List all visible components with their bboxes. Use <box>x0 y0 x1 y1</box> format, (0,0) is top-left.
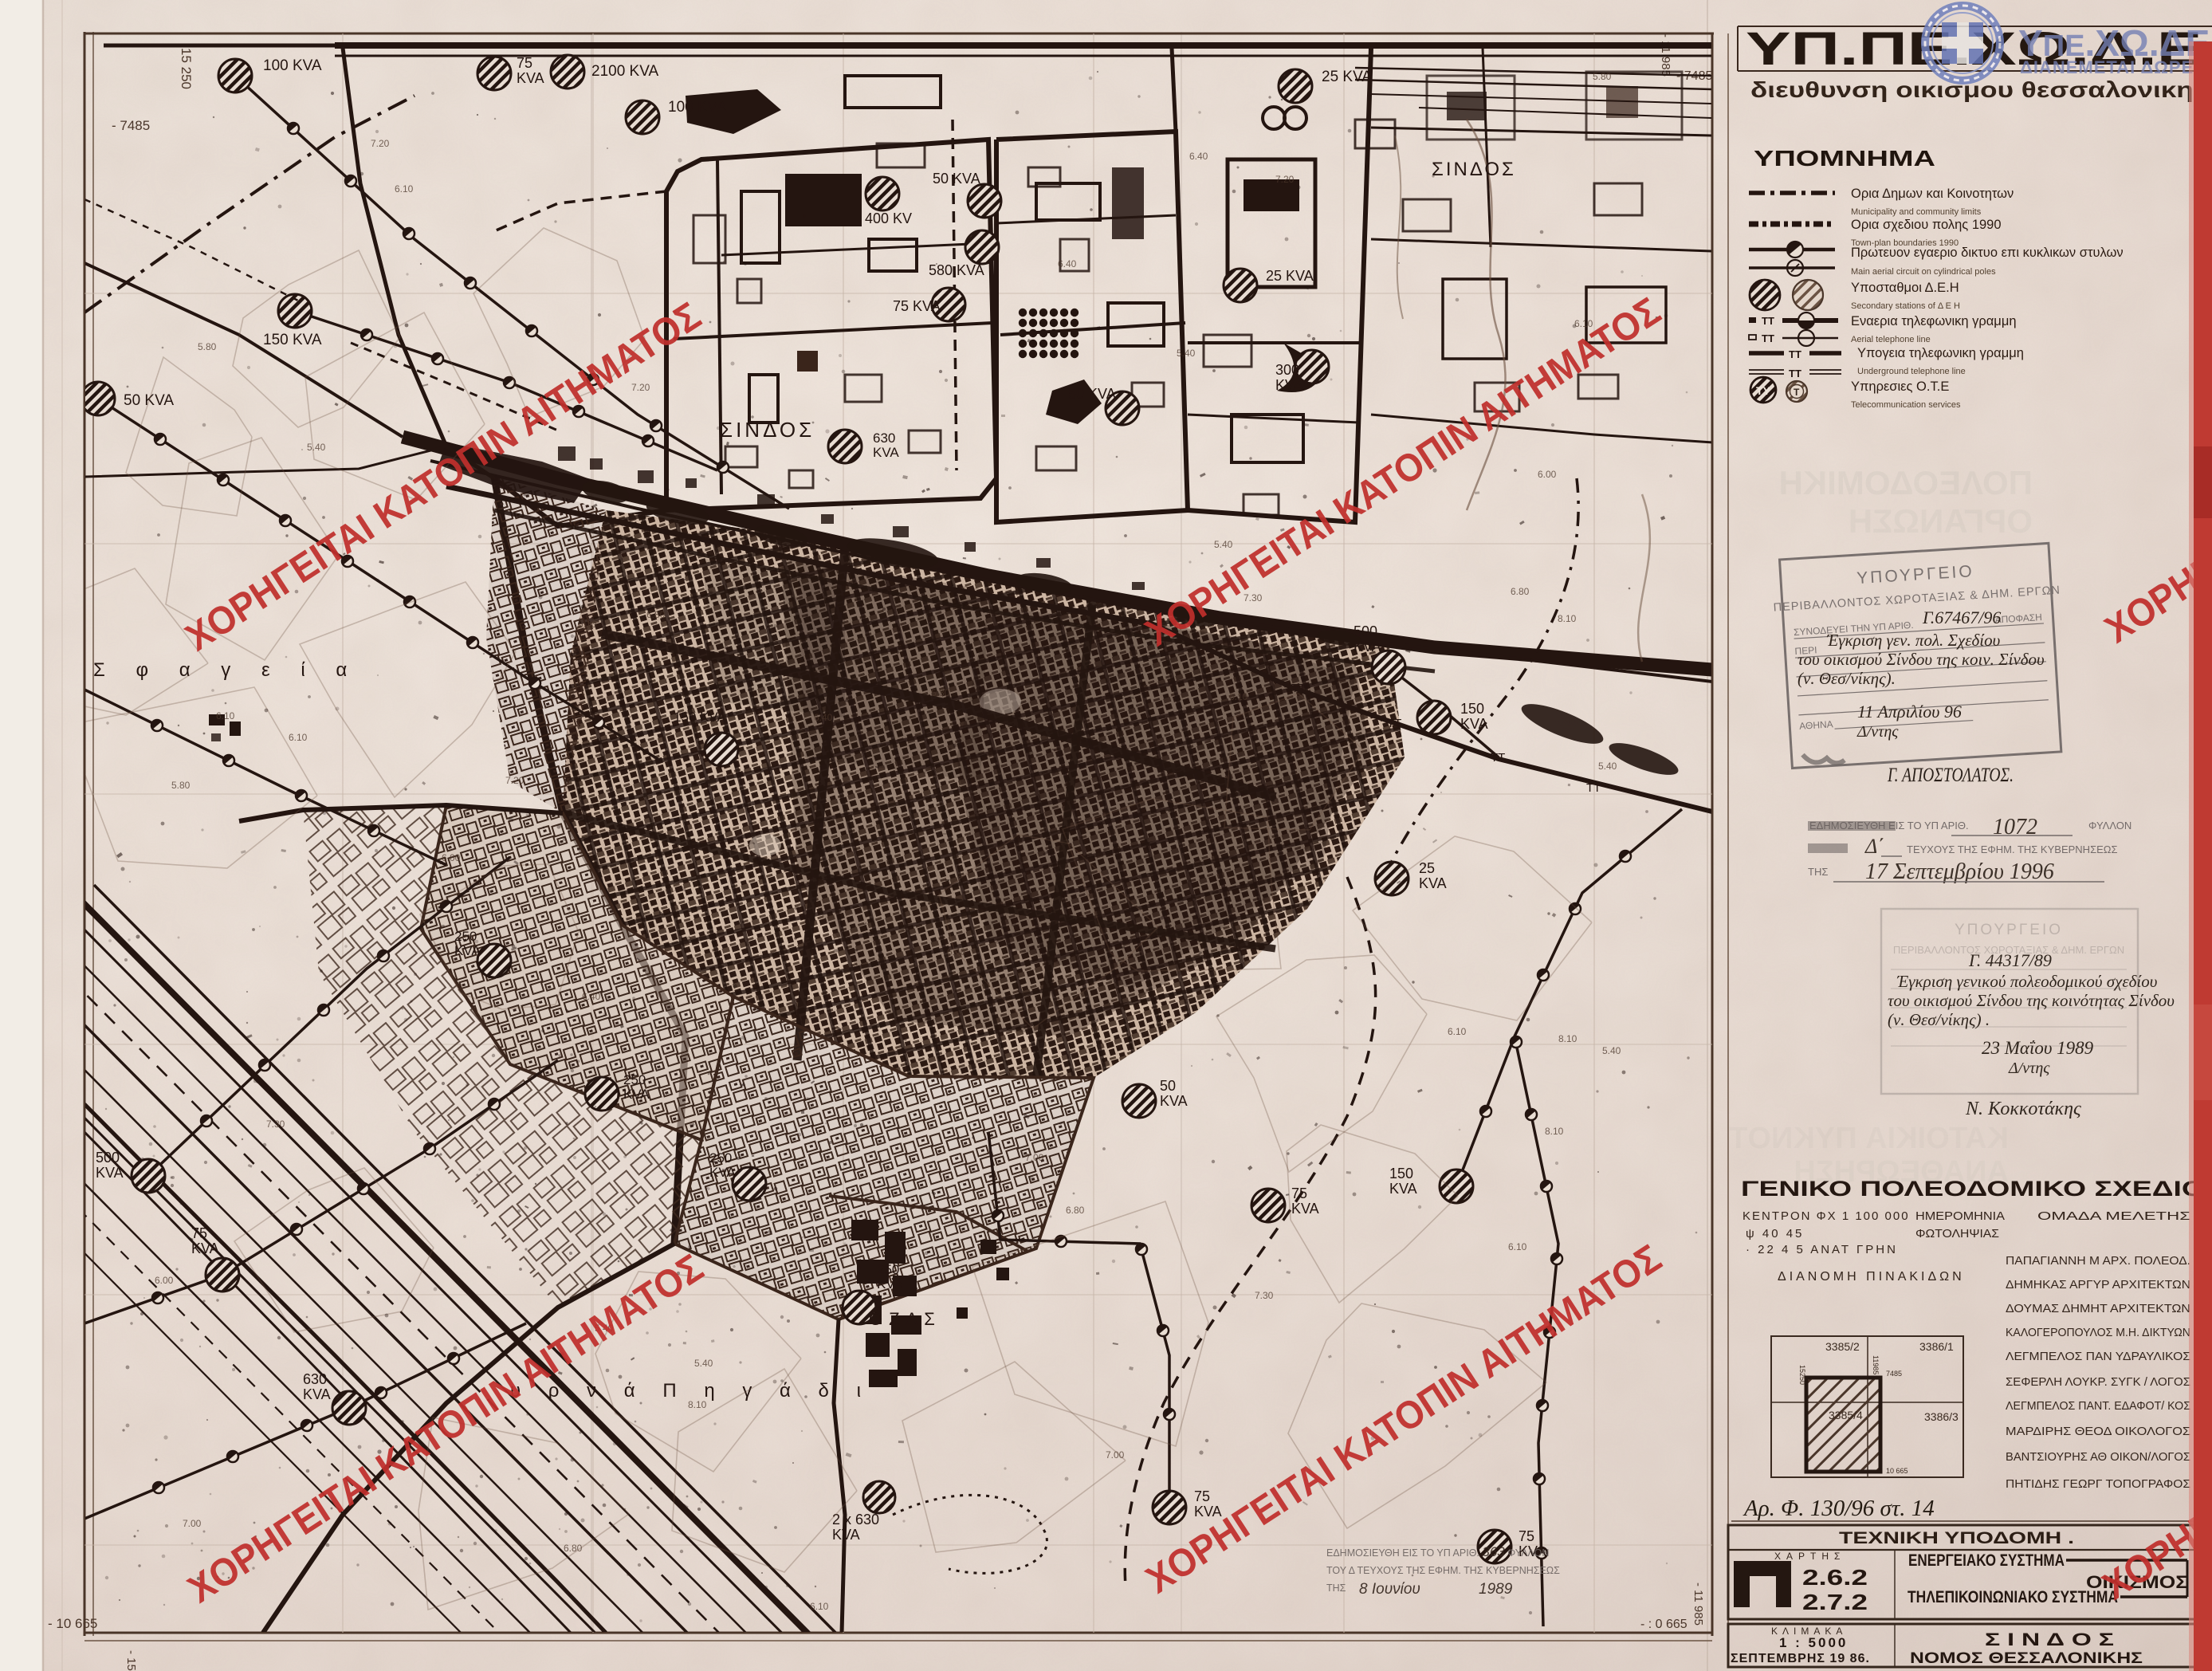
svg-text:ΜΑΡΔΙΡΗΣ ΘΕΟΔ ΟΙΚΟΛΟΓΟΣ: ΜΑΡΔΙΡΗΣ ΘΕΟΔ ΟΙΚΟΛΟΓΟΣ <box>2006 1425 2190 1438</box>
svg-text:ΔΟΥΜΑΣ ΔΗΜΗΤ ΑΡΧΙΤΕΚΤΩΝ: ΔΟΥΜΑΣ ΔΗΜΗΤ ΑΡΧΙΤΕΚΤΩΝ <box>2006 1303 2190 1315</box>
svg-text:- 7485: - 7485 <box>112 118 150 133</box>
svg-text:500: 500 <box>1354 623 1377 639</box>
svg-text:KVA: KVA <box>1160 1093 1188 1109</box>
svg-text:ΚΑΤΟΙΚΙΑ ΠΥΚΝΟΤ: ΚΑΤΟΙΚΙΑ ΠΥΚΝΟΤ <box>1729 1122 2009 1155</box>
svg-text:25 KVA: 25 KVA <box>1322 69 1372 85</box>
svg-text:7.20: 7.20 <box>631 382 650 393</box>
svg-text:ΠΟΛΕΟΔΟΜΙΚΗ: ΠΟΛΕΟΔΟΜΙΚΗ <box>1779 464 2033 501</box>
svg-text:ΝΟΜΟΣ ΘΕΣΣΑΛΟΝΙΚΗΣ: ΝΟΜΟΣ ΘΕΣΣΑΛΟΝΙΚΗΣ <box>1910 1650 2143 1667</box>
svg-text:ΣΙΝΔΟΣ: ΣΙΝΔΟΣ <box>1432 159 1516 180</box>
svg-text:TT: TT <box>1387 717 1401 730</box>
svg-text:2.6.2: 2.6.2 <box>1802 1565 1868 1590</box>
svg-text:Δ/ντης: Δ/ντης <box>1856 723 1899 741</box>
svg-text:KVA: KVA <box>96 1165 124 1181</box>
svg-text:TY: TY <box>1756 384 1771 397</box>
svg-text:ΤΟΥ Δ ΤΕΥΧΟΥΣ ΤΗΣ ΕΦΗΜ. ΤΗΣ ΚΥ: ΤΟΥ Δ ΤΕΥΧΟΥΣ ΤΗΣ ΕΦΗΜ. ΤΗΣ ΚΥΒΕΡΝΗΣΕΩΣ <box>1326 1565 1560 1576</box>
svg-text:Ορια σχεδιου πολης 1990: Ορια σχεδιου πολης 1990 <box>1851 218 2002 232</box>
svg-text:Έγκριση γενικού πολεοδομικού σ: Έγκριση γενικού πολεοδομικού σχεδίου <box>1896 972 2157 991</box>
svg-text:6.40: 6.40 <box>1058 258 1077 269</box>
svg-text:(ν. Θεσ/νίκης) .: (ν. Θεσ/νίκης) . <box>1888 1010 1990 1029</box>
svg-text:7.30: 7.30 <box>1255 1290 1274 1301</box>
svg-text:6.10: 6.10 <box>578 619 597 630</box>
svg-text:500: 500 <box>96 1150 120 1166</box>
svg-text:250: 250 <box>709 1150 732 1166</box>
svg-text:ΕΝΕΡΓΕΙΑΚΟ ΣΥΣΤΗΜΑ: ΕΝΕΡΓΕΙΑΚΟ ΣΥΣΤΗΜΑ <box>1908 1551 2065 1570</box>
svg-text:6.00: 6.00 <box>155 1275 174 1286</box>
svg-text:5.80: 5.80 <box>198 341 217 352</box>
svg-text:KVA: KVA <box>1291 1201 1319 1217</box>
svg-text:250: 250 <box>623 1072 646 1087</box>
svg-text:6.80: 6.80 <box>564 1543 583 1554</box>
svg-text:KVA: KVA <box>1389 1181 1417 1197</box>
svg-text:TT: TT <box>1762 332 1774 344</box>
svg-text:100 KVA: 100 KVA <box>668 99 727 116</box>
svg-text:Υποσταθμοι Δ.Ε.Η: Υποσταθμοι Δ.Ε.Η <box>1851 281 1959 295</box>
svg-text:7.00: 7.00 <box>1025 1152 1044 1163</box>
svg-text:Γ. 44317/89: Γ. 44317/89 <box>1968 950 2052 970</box>
svg-text:400 KV: 400 KV <box>865 210 912 226</box>
svg-text:- 15 250: - 15 250 <box>124 1650 138 1671</box>
svg-text:Δ΄: Δ΄ <box>1864 835 1884 858</box>
svg-text:5.40: 5.40 <box>1177 348 1196 359</box>
svg-text:6.10: 6.10 <box>216 710 235 721</box>
svg-text:ΟΡΓΑΝΩΣΗ: ΟΡΓΑΝΩΣΗ <box>1849 502 2033 540</box>
svg-text:7.20: 7.20 <box>505 775 525 786</box>
svg-text:ΣΕΦΕΡΛΗ ΛΟΥΚΡ. ΣΥΓΚ / ΛΟΓΟ: ΣΕΦΕΡΛΗ ΛΟΥΚΡ. ΣΥΓΚ / ΛΟΓΟΣ <box>2006 1376 2190 1389</box>
svg-text:5.80: 5.80 <box>1593 71 1612 82</box>
svg-text:ΤΗΛΕΠΙΚΟΙΝΩΝΙΑΚΟ ΣΥΣΤΗΜΑ: ΤΗΛΕΠΙΚΟΙΝΩΝΙΑΚΟ ΣΥΣΤΗΜΑ <box>1908 1588 2118 1606</box>
svg-text:KVA: KVA <box>191 1240 219 1256</box>
svg-text:ΠΗΤΙΔΗΣ ΓΕΩΡΓ ΤΟΠΟΓΡΑΦΟΣ: ΠΗΤΙΔΗΣ ΓΕΩΡΓ ΤΟΠΟΓΡΑΦΟΣ <box>2006 1478 2190 1491</box>
svg-text:6.10: 6.10 <box>1229 691 1248 702</box>
svg-text:Aerial telephone line: Aerial telephone line <box>1851 335 1931 344</box>
svg-text:Secondary stations of Δ Ε Η: Secondary stations of Δ Ε Η <box>1851 301 1960 311</box>
svg-text:ΤΗΣ: ΤΗΣ <box>1808 866 1828 878</box>
svg-text:ΚΕΝΤΡΟΝ ΦΧ 1 100 000: ΚΕΝΤΡΟΝ ΦΧ 1 100 000 <box>1742 1209 1910 1223</box>
svg-text:6.40: 6.40 <box>814 712 833 723</box>
svg-text:7.30: 7.30 <box>266 1119 285 1130</box>
svg-text:2 x 630: 2 x 630 <box>832 1512 879 1527</box>
svg-text:50 KVA: 50 KVA <box>1068 386 1116 402</box>
svg-text:Έγκριση γεν. πολ. Σχεδίου: Έγκριση γεν. πολ. Σχεδίου <box>1826 631 2000 650</box>
svg-text:5.40: 5.40 <box>1598 761 1617 772</box>
svg-text:50: 50 <box>1160 1078 1176 1094</box>
svg-text:25 KVA: 25 KVA <box>1266 268 1314 284</box>
svg-text:Municipality and community: Municipality and community limits <box>1851 207 1982 217</box>
svg-text:75: 75 <box>1519 1528 1534 1544</box>
svg-text:6.80: 6.80 <box>1066 1205 1085 1216</box>
svg-text:15250: 15250 <box>1798 1365 1806 1385</box>
svg-text:ΓΕΝΙΚΟ ΠΟΛΕΟΔΟΜΙΚΟ ΣΧΕΔΙΟ: ΓΕΝΙΚΟ ΠΟΛΕΟΔΟΜΙΚΟ ΣΧΕΔΙΟ <box>1741 1177 2205 1201</box>
svg-text:630: 630 <box>303 1371 327 1387</box>
svg-text:KVA: KVA <box>877 1276 903 1292</box>
svg-text:KVA: KVA <box>454 943 481 958</box>
svg-text:Main aerial circuit on cyl: Main aerial circuit on cylindrical poles <box>1851 267 1996 277</box>
svg-text:6.10: 6.10 <box>810 1601 829 1612</box>
svg-text:7.20: 7.20 <box>371 138 390 149</box>
svg-text:υ ρ ν ά Π η γ ά δ ι: υ ρ ν ά Π η γ ά δ ι <box>510 1380 872 1402</box>
svg-text:TT: TT <box>1789 368 1801 379</box>
svg-text:KVA: KVA <box>623 1087 650 1102</box>
svg-text:150: 150 <box>1389 1166 1413 1181</box>
svg-text:Σ Ι Ν Δ Ο Σ: Σ Ι Ν Δ Ο Σ <box>1985 1630 2114 1649</box>
svg-text:8.10: 8.10 <box>1558 613 1577 624</box>
svg-text:75: 75 <box>1194 1488 1210 1504</box>
svg-text:Υπογεια τηλεφωνικη γραμμη: Υπογεια τηλεφωνικη γραμμη <box>1857 346 2024 360</box>
svg-text:150 KVA: 150 KVA <box>263 332 322 348</box>
svg-text:T: T <box>1794 387 1800 398</box>
svg-text:Υπηρεσιες Ο.Τ.Ε: Υπηρεσιες Ο.Τ.Ε <box>1851 379 1949 394</box>
svg-text:75: 75 <box>191 1225 207 1241</box>
svg-text:300: 300 <box>1275 362 1299 378</box>
svg-text:15 250: 15 250 <box>179 48 194 89</box>
svg-text:ΤΗΣ: ΤΗΣ <box>1326 1583 1346 1594</box>
svg-text:ΣΙΝΔΟΣ: ΣΙΝΔΟΣ <box>720 418 815 442</box>
svg-text:ΚΑΛΟΓΕΡΟΠΟΥΛΟΣ Μ.Η. ΔΙΚΤΥΩΝ: ΚΑΛΟΓΕΡΟΠΟΥΛΟΣ Μ.Η. ΔΙΚΤΥΩΝ <box>2006 1327 2190 1339</box>
svg-text:6.40: 6.40 <box>582 991 601 1002</box>
svg-text:του οικισμού Σίνδου της κοιν.: του οικισμού Σίνδου της κοιν. Σίνδου <box>1797 650 2045 669</box>
svg-text:6.00: 6.00 <box>442 852 461 863</box>
svg-text:3386/1: 3386/1 <box>1919 1340 1954 1353</box>
svg-text:3385/2: 3385/2 <box>1825 1340 1860 1353</box>
svg-text:75: 75 <box>1291 1185 1307 1201</box>
svg-text:75: 75 <box>517 55 532 71</box>
svg-text:11985: 11985 <box>1872 1355 1880 1374</box>
svg-text:10 665: 10 665 <box>1886 1467 1908 1475</box>
svg-text:8.10: 8.10 <box>1545 1126 1564 1137</box>
svg-text:ΛΕΓΜΠΕΛΟΣ ΠΑΝ ΥΔΡΑΥΛΙΚΟΣ: ΛΕΓΜΠΕΛΟΣ ΠΑΝ ΥΔΡΑΥΛΙΚΟΣ <box>2006 1351 2190 1363</box>
svg-text:5.40: 5.40 <box>1214 539 1233 550</box>
svg-text:17 Σεπτεμβρίου 1996: 17 Σεπτεμβρίου 1996 <box>1865 859 2054 884</box>
svg-text:5.40: 5.40 <box>1602 1045 1621 1056</box>
svg-text:2.7.2: 2.7.2 <box>1802 1590 1868 1614</box>
svg-text:ΦΥΛΛΟΝ: ΦΥΛΛΟΝ <box>2088 820 2131 832</box>
svg-text:6.10: 6.10 <box>1508 1241 1527 1252</box>
svg-text:580 KVA: 580 KVA <box>929 262 984 278</box>
svg-text:ΒΑΝΤΣΙΟΥΡΗΣ ΑΘ ΟΙΚΟΝ/ΛΟΓΟΣ: ΒΑΝΤΣΙΟΥΡΗΣ ΑΘ ΟΙΚΟΝ/ΛΟΓΟΣ <box>2006 1451 2190 1464</box>
svg-text:7485: 7485 <box>1886 1370 1902 1378</box>
svg-text:ΣΕΠΤΕΜΒΡΗΣ 19 86.: ΣΕΠΤΕΜΒΡΗΣ 19 86. <box>1731 1652 1870 1665</box>
svg-text:Ν. Κοκκοτάκης: Ν. Κοκκοτάκης <box>1965 1099 2081 1119</box>
svg-text:75 KVA: 75 KVA <box>893 298 941 314</box>
svg-text:1 : 5000: 1 : 5000 <box>1779 1635 1848 1650</box>
svg-text:KVA: KVA <box>832 1527 860 1543</box>
svg-text:ΑΘΗΝΑ: ΑΘΗΝΑ <box>1799 718 1833 732</box>
svg-text:ΤΕΧΝΙΚΗ ΥΠΟΔΟΜΗ .: ΤΕΧΝΙΚΗ ΥΠΟΔΟΜΗ . <box>1839 1529 2074 1547</box>
svg-text:630: 630 <box>873 431 895 446</box>
svg-text:ψ 40 45: ψ 40 45 <box>1746 1227 1804 1240</box>
svg-text:23 Μαΐου 1989: 23 Μαΐου 1989 <box>1982 1038 2094 1058</box>
svg-text:100 KVA: 100 KVA <box>263 57 322 74</box>
svg-text:1989: 1989 <box>1479 1581 1513 1598</box>
svg-text:· 22 4 5 ΑΝΑΤ ΓΡΗΝ: · 22 4 5 ΑΝΑΤ ΓΡΗΝ <box>1746 1243 1898 1256</box>
svg-text:ΗΜΕΡΟΜΗΝΙΑ: ΗΜΕΡΟΜΗΝΙΑ <box>1915 1209 2005 1223</box>
svg-text:2100 KVA: 2100 KVA <box>591 63 658 80</box>
svg-text:- 11 985: - 11 985 <box>1691 1583 1705 1626</box>
svg-text:Ορια Δημων και Κοινοτητων: Ορια Δημων και Κοινοτητων <box>1851 187 2014 201</box>
svg-text:Δ/ντης: Δ/ντης <box>2008 1060 2050 1077</box>
svg-text:ΔΙΑΝΟΜΗ ΠΙΝΑΚΙΔΩΝ: ΔΙΑΝΟΜΗ ΠΙΝΑΚΙΔΩΝ <box>1778 1270 1965 1284</box>
svg-text:250: 250 <box>877 1262 899 1277</box>
svg-text:ΤΕΥΧΟΥΣ ΤΗΣ ΕΦΗΜ. ΤΗΣ ΚΥΒΕΡΝΗΣ: ΤΕΥΧΟΥΣ ΤΗΣ ΕΦΗΜ. ΤΗΣ ΚΥΒΕΡΝΗΣΕΩΣ <box>1907 843 2118 855</box>
svg-text:5.40: 5.40 <box>307 442 326 453</box>
svg-text:5.40: 5.40 <box>694 1358 713 1369</box>
svg-text:6.80: 6.80 <box>1511 586 1530 597</box>
svg-text:6.40: 6.40 <box>1189 151 1208 162</box>
svg-text:KVA: KVA <box>303 1386 331 1402</box>
svg-text:6.10: 6.10 <box>289 732 308 743</box>
svg-text:Underground telephone line: Underground telephone line <box>1857 367 1966 376</box>
svg-text:KVA: KVA <box>1419 875 1447 891</box>
svg-text:TT: TT <box>1789 348 1801 360</box>
svg-text:6.00: 6.00 <box>1538 469 1557 480</box>
svg-text:(ν. Θεσ/νίκης).: (ν. Θεσ/νίκης). <box>1797 669 1896 688</box>
svg-text:150: 150 <box>1460 701 1484 717</box>
svg-text:5.80: 5.80 <box>931 687 950 698</box>
svg-text:KVA: KVA <box>517 70 544 86</box>
svg-text:KVA: KVA <box>873 445 899 460</box>
svg-text:Αρ. Φ. 130/96 στ. 14: Αρ. Φ. 130/96 στ. 14 <box>1742 1496 1935 1521</box>
svg-text:ΧΑΡΤΗΣ: ΧΑΡΤΗΣ <box>1774 1551 1845 1562</box>
svg-text:8.10: 8.10 <box>1558 1033 1577 1044</box>
svg-text:250: 250 <box>454 929 477 944</box>
svg-text:ΛΕΓΜΠΕΛΟΣ ΠΑΝΤ. ΕΔΑΦΟΤ/ ΚΟΣ: ΛΕΓΜΠΕΛΟΣ ΠΑΝΤ. ΕΔΑΦΟΤ/ ΚΟΣ <box>2006 1400 2190 1413</box>
svg-text:5.80: 5.80 <box>171 780 191 791</box>
svg-text:3386/3: 3386/3 <box>1924 1410 1959 1423</box>
svg-text:3385/4: 3385/4 <box>1829 1409 1863 1421</box>
svg-text:11 Απριλίου 96: 11 Απριλίου 96 <box>1857 702 1962 721</box>
svg-text:6.10: 6.10 <box>1448 1026 1467 1037</box>
svg-text:TT: TT <box>1586 781 1601 795</box>
svg-text:50 KVA: 50 KVA <box>933 171 980 187</box>
svg-text:- 10 665: - 10 665 <box>48 1616 97 1631</box>
svg-text:ΥΠΟΥΡΓΕΙΟ: ΥΠΟΥΡΓΕΙΟ <box>1955 922 2063 938</box>
svg-text:6.80: 6.80 <box>646 609 666 620</box>
svg-text:KVA: KVA <box>709 1165 736 1180</box>
svg-text:ΟΖΑΣ: ΟΖΑΣ <box>869 1309 941 1329</box>
svg-text:ΦΩΤΟΛΗΨΙΑΣ: ΦΩΤΟΛΗΨΙΑΣ <box>1915 1227 1999 1240</box>
svg-text:ΠΑΠΑΓΙΑΝΝΗ Μ ΑΡΧ. ΠΟΛΕΟΔ.: ΠΑΠΑΓΙΑΝΝΗ Μ ΑΡΧ. ΠΟΛΕΟΔ. <box>2006 1255 2190 1268</box>
svg-text:TT: TT <box>1762 315 1774 327</box>
svg-text:του οικισμού Σίνδου της κοινότ: του οικισμού Σίνδου της κοινότητας Σίνδο… <box>1888 991 2175 1010</box>
svg-text:7.00: 7.00 <box>1106 1449 1125 1461</box>
svg-text:Εναερια τηλεφωνικη γραμμη: Εναερια τηλεφωνικη γραμμη <box>1851 314 2017 328</box>
svg-text:KVA: KVA <box>1275 377 1303 393</box>
svg-text:Γ.67467/96: Γ.67467/96 <box>1922 607 2001 627</box>
svg-text:ΥΠΟΜΝΗΜΑ: ΥΠΟΜΝΗΜΑ <box>1754 146 1935 171</box>
svg-text:25: 25 <box>1419 860 1435 876</box>
svg-text:KVA: KVA <box>1354 639 1381 655</box>
svg-text:TT: TT <box>1196 642 1210 655</box>
svg-text:8 Ιουνίου: 8 Ιουνίου <box>1359 1581 1420 1598</box>
svg-text:7.20: 7.20 <box>1275 174 1295 185</box>
svg-text:6.10: 6.10 <box>395 183 414 195</box>
svg-text:ΟΜΑΔΑ ΜΕΛΕΤΗΣ: ΟΜΑΔΑ ΜΕΛΕΤΗΣ <box>2037 1209 2190 1223</box>
svg-text:- : 0 665: - : 0 665 <box>1640 1618 1687 1631</box>
svg-text:6.40: 6.40 <box>947 946 966 957</box>
svg-text:Γ. ΑΠΟΣΤΟΛΑΤΟΣ.: Γ. ΑΠΟΣΤΟΛΑΤΟΣ. <box>1887 765 2014 786</box>
svg-text:ΔΗΜΗΚΑΣ ΑΡΓΥΡ ΑΡΧΙΤΕΚΤΩΝ: ΔΗΜΗΚΑΣ ΑΡΓΥΡ ΑΡΧΙΤΕΚΤΩΝ <box>2006 1279 2190 1292</box>
svg-text:Σ φ α γ ε ί α: Σ φ α γ ε ί α <box>93 659 359 681</box>
svg-text:150 KVA: 150 KVA <box>674 710 727 725</box>
svg-text:8.10: 8.10 <box>688 1399 707 1410</box>
svg-text:διευθυνση οικισμου θεσσαλονι: διευθυνση οικισμου θεσσαλονικης <box>1750 77 2208 102</box>
svg-text:ΔΙΑΝΕΜΕΤΑΙ ΔΩΡΕΑΝ: ΔΙΑΝΕΜΕΤΑΙ ΔΩΡΕΑΝ <box>2020 57 2212 77</box>
svg-text:Πρωτευον εγαεριο δικτυο επι κυ: Πρωτευον εγαεριο δικτυο επι κυκλικων στυ… <box>1851 246 2124 260</box>
svg-text:7.00: 7.00 <box>183 1518 202 1529</box>
svg-text:Telecommunication services: Telecommunication services <box>1851 400 1961 410</box>
